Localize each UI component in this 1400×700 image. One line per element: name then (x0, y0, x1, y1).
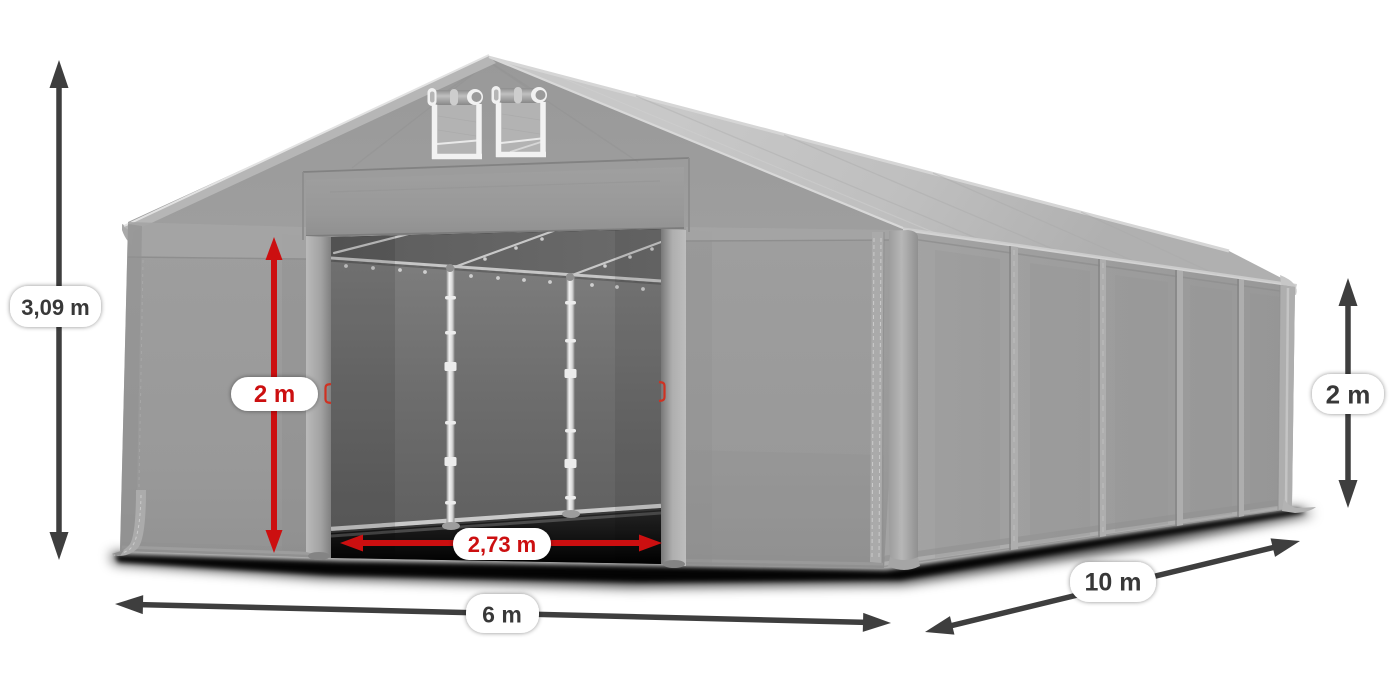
svg-text:6 m: 6 m (482, 602, 522, 628)
svg-text:2 m: 2 m (1326, 380, 1371, 410)
svg-text:2 m: 2 m (254, 381, 295, 408)
svg-text:3,09 m: 3,09 m (21, 295, 90, 320)
svg-text:2,73 m: 2,73 m (468, 532, 537, 557)
svg-text:10 m: 10 m (1085, 569, 1142, 597)
